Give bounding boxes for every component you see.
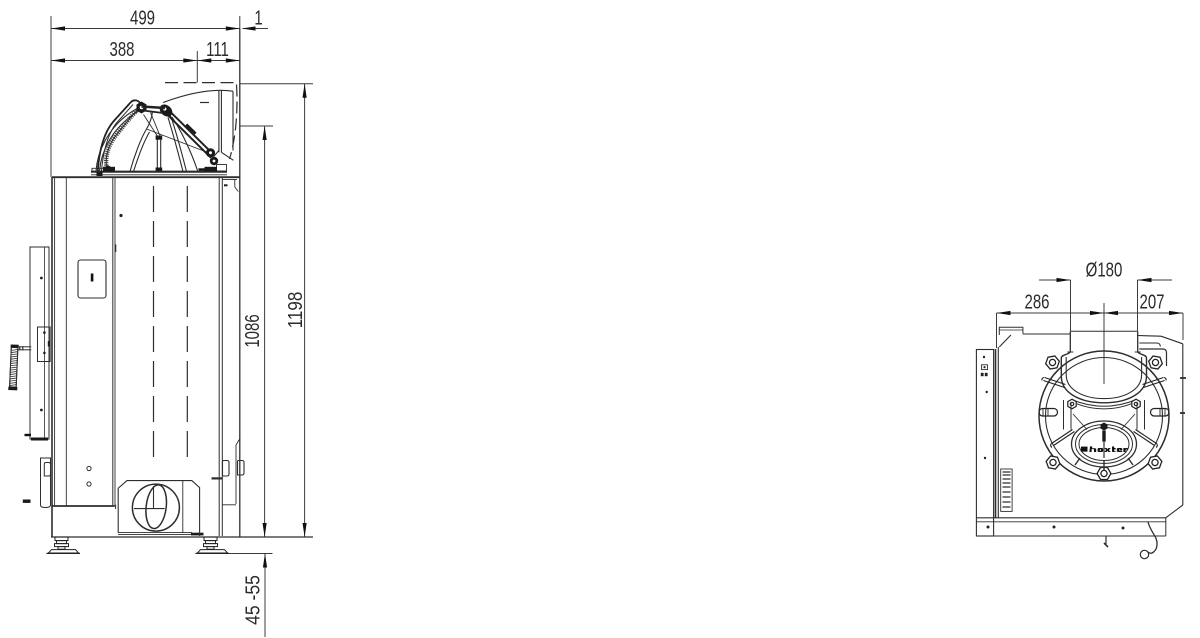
svg-text:45 -55: 45 -55 [241,575,263,625]
svg-text:1198: 1198 [284,292,307,329]
svg-text:Ø180: Ø180 [1086,258,1123,281]
svg-text:286: 286 [1024,290,1049,313]
svg-text:1086: 1086 [241,314,264,347]
svg-text:388: 388 [109,38,134,61]
svg-text:1: 1 [254,6,262,29]
svg-text:207: 207 [1139,290,1164,313]
svg-text:111: 111 [206,38,229,61]
svg-text:499: 499 [130,6,155,29]
